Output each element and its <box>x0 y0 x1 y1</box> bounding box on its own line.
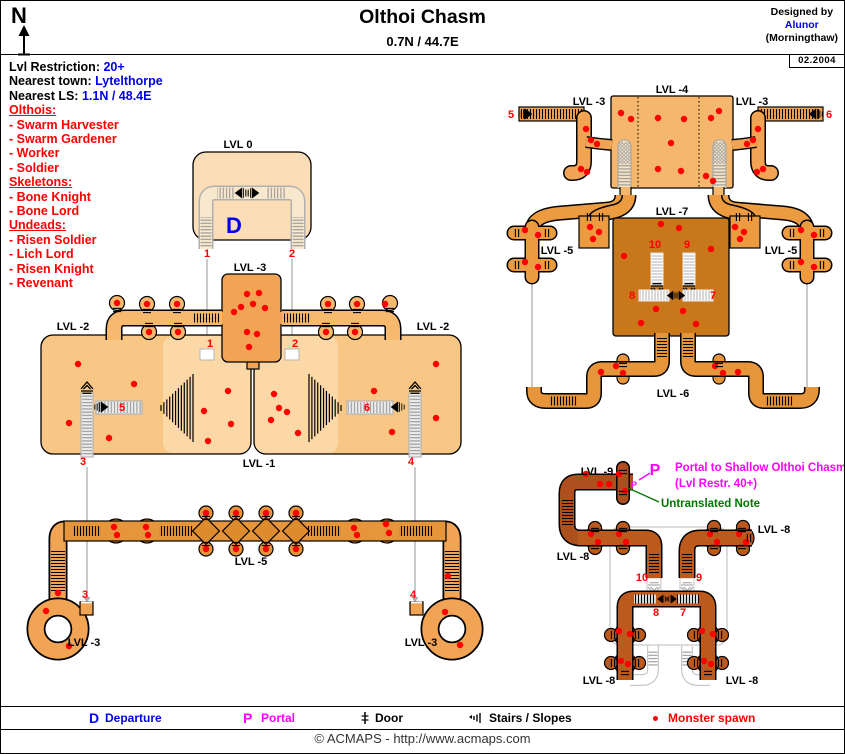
route-marker: 2 <box>292 338 298 350</box>
monster-spawn-dot <box>535 264 541 270</box>
monster-spawn-dot <box>628 116 634 122</box>
monster-spawn-dot <box>616 628 622 634</box>
page-title: Olthoi Chasm <box>1 6 844 29</box>
monster-spawn-dot <box>131 381 137 387</box>
monster-spawn-dot <box>228 421 234 427</box>
monster-spawn-dot <box>597 481 603 487</box>
level-label: LVL -3 <box>736 96 769 108</box>
monster-spawn-dot <box>744 141 750 147</box>
monster-group-title: Skeletons: <box>9 175 163 189</box>
level-label: LVL -8 <box>557 551 590 563</box>
monster-spawn-dot <box>653 306 659 312</box>
lvl5-corridor <box>36 506 474 651</box>
mid-rooms <box>41 274 461 457</box>
monster-spawn-dot <box>271 391 277 397</box>
departure-letter: D <box>226 213 242 238</box>
monster-spawn-dot <box>720 370 726 376</box>
monster-spawn-dot <box>620 370 626 376</box>
monster-spawn-dot <box>144 301 150 307</box>
route-marker: 4 <box>410 589 417 601</box>
level-label: LVL -8 <box>758 524 791 536</box>
untranslated-note: Untranslated Note <box>661 498 760 510</box>
restriction-label: Lvl Restriction: <box>9 60 100 74</box>
monster-spawn-dot <box>457 642 463 648</box>
spawn-legend-icon <box>653 716 658 721</box>
monster-spawn-dot <box>708 661 714 667</box>
monster-spawn-dot <box>743 539 749 545</box>
monster-spawn-dot <box>535 232 541 238</box>
route-marker: 1 <box>207 338 213 350</box>
monster-spawn-dot <box>522 227 528 233</box>
monster-spawn-dot <box>798 259 804 265</box>
monster-spawn-dot <box>325 301 331 307</box>
monster-spawn-dot <box>225 388 231 394</box>
monster-spawn-dot <box>578 166 584 172</box>
monster-spawn-dot <box>638 320 644 326</box>
monster-spawn-dot <box>203 546 209 552</box>
monster-spawn-dot <box>583 126 589 132</box>
route-marker: 1 <box>204 248 210 260</box>
restriction-value: 20+ <box>103 60 124 74</box>
monster-spawn-dot <box>741 229 747 235</box>
level-label: LVL -2 <box>417 321 450 333</box>
monster-spawn-dot <box>714 539 720 545</box>
monster-spawn-dot <box>701 658 707 664</box>
monster-spawn-dot <box>382 301 388 307</box>
monster-spawn-dot <box>625 661 631 667</box>
monster-spawn-dot <box>732 224 738 230</box>
route-marker: 9 <box>684 239 690 251</box>
monster-spawn-dot <box>244 329 250 335</box>
monster-spawn-dot <box>233 510 239 516</box>
monster-spawn-dot <box>658 221 664 227</box>
monster-item: - Risen Knight <box>9 262 163 276</box>
map-date: 02.2004 <box>789 55 844 68</box>
monster-spawn-dot <box>699 628 705 634</box>
monster-group-title: Olthois: <box>9 103 163 117</box>
monster-item: - Bone Lord <box>9 204 163 218</box>
monster-spawn-dot <box>284 409 290 415</box>
monster-spawn-dot <box>754 169 760 175</box>
monster-spawn-dot <box>146 329 152 335</box>
monster-spawn-dot <box>594 141 600 147</box>
monster-spawn-dot <box>55 590 61 596</box>
portal-node-letter: P <box>631 480 637 490</box>
monster-spawn-dot <box>710 178 716 184</box>
level-label: LVL -8 <box>726 675 759 687</box>
monster-spawn-dot <box>293 510 299 516</box>
monster-spawn-dot <box>676 225 682 231</box>
author-name: Alunor <box>785 19 819 31</box>
monster-spawn-dot <box>668 140 674 146</box>
monster-item: - Bone Knight <box>9 190 163 204</box>
door-legend-icon <box>359 707 371 729</box>
legend-portal-key: P <box>243 707 252 729</box>
monster-spawn-dot <box>351 525 357 531</box>
monster-spawn-dot <box>708 246 714 252</box>
copyright-footer: © ACMAPS - http://www.acmaps.com <box>1 731 844 746</box>
route-marker: 10 <box>649 239 661 251</box>
ls-label: Nearest LS: <box>9 89 78 103</box>
legend-departure-label: Departure <box>105 707 162 729</box>
monster-spawn-dot <box>262 305 268 311</box>
monster-spawn-dot <box>201 408 207 414</box>
acmaps-page: LVL 0LVL -3LVL -2LVL -2LVL -1LVL -5LVL -… <box>0 0 845 754</box>
monster-spawn-dot <box>256 290 262 296</box>
monster-spawn-dot <box>716 108 722 114</box>
town-value: Lytelthorpe <box>95 74 163 88</box>
monster-spawn-dot <box>352 329 358 335</box>
monster-spawn-dot <box>250 301 256 307</box>
monster-spawn-dot <box>703 173 709 179</box>
legend-portal-label: Portal <box>261 707 295 729</box>
monster-group-title: Undeads: <box>9 218 163 232</box>
monster-spawn-dot <box>618 658 624 664</box>
monster-spawn-dot <box>678 168 684 174</box>
monster-spawn-dot <box>203 510 209 516</box>
monster-spawn-dot <box>680 308 686 314</box>
monster-spawn-dot <box>587 224 593 230</box>
portal-pointer-line <box>639 473 650 480</box>
ls-value: 1.1N / 48.4E <box>82 89 152 103</box>
monster-spawn-dot <box>143 524 149 530</box>
monster-spawn-dot <box>710 631 716 637</box>
route-marker: 3 <box>80 456 86 468</box>
level-label: LVL -3 <box>234 262 267 274</box>
route-marker: 5 <box>119 402 125 414</box>
monster-spawn-dot <box>681 116 687 122</box>
route-marker: 3 <box>82 589 88 601</box>
level-label: LVL -5 <box>765 245 798 257</box>
monster-spawn-dot <box>295 430 301 436</box>
level-label: LVL -8 <box>583 675 616 687</box>
legend-stairs-label: Stairs / Slopes <box>489 707 572 729</box>
portal-note-line1: Portal to Shallow Olthoi Chasm <box>675 462 844 474</box>
monster-spawn-dot <box>268 417 274 423</box>
dungeon-info: Lvl Restriction: 20+ Nearest town: Lytel… <box>9 60 163 291</box>
legend-bar: D Departure P Portal Door Stairs / Slope… <box>1 706 844 730</box>
stairs-legend-icon <box>465 707 485 729</box>
monster-spawn-dot <box>584 169 590 175</box>
level-label: LVL 0 <box>224 139 253 151</box>
monster-spawn-dot <box>693 321 699 327</box>
monster-spawn-dot <box>244 291 250 297</box>
level-label: LVL -3 <box>405 637 438 649</box>
route-marker: 6 <box>826 109 832 121</box>
header-divider <box>1 54 844 55</box>
monster-spawn-dot <box>114 300 120 306</box>
monster-spawn-dot <box>445 573 451 579</box>
monster-spawn-dot <box>231 309 237 315</box>
monster-spawn-dot <box>263 510 269 516</box>
monster-spawn-dot <box>623 539 629 545</box>
level-label: LVL -9 <box>581 466 614 478</box>
level-label: LVL -5 <box>235 556 268 568</box>
monster-item: - Soldier <box>9 161 163 175</box>
monster-spawn-dot <box>114 532 120 538</box>
monster-item: - Risen Soldier <box>9 233 163 247</box>
monster-spawn-dot <box>613 363 619 369</box>
monster-spawn-dot <box>606 481 612 487</box>
monster-spawn-dot <box>323 329 329 335</box>
town-label: Nearest town: <box>9 74 92 88</box>
monster-spawn-dot <box>760 166 766 172</box>
monster-spawn-dot <box>596 229 602 235</box>
monster-spawn-dot <box>811 232 817 238</box>
legend-spawn-label: Monster spawn <box>668 707 755 729</box>
route-marker: 9 <box>696 572 702 584</box>
monster-spawn-dot <box>627 631 633 637</box>
route-marker: 7 <box>680 607 686 619</box>
monster-spawn-dot <box>442 609 448 615</box>
legend-door-label: Door <box>375 707 403 729</box>
monster-spawn-dot <box>798 227 804 233</box>
monster-spawn-dot <box>433 361 439 367</box>
monster-spawn-dot <box>750 137 756 143</box>
monster-spawn-dot <box>276 405 282 411</box>
designed-by-label: Designed by <box>771 6 833 18</box>
monster-spawn-dot <box>293 546 299 552</box>
monster-spawn-dot <box>174 301 180 307</box>
monster-spawn-dot <box>238 304 244 310</box>
monster-item: - Lich Lord <box>9 247 163 261</box>
monster-spawn-dot <box>755 126 761 132</box>
portal-note-line2: (Lvl Restr. 40+) <box>675 478 757 490</box>
monster-spawn-dot <box>522 259 528 265</box>
route-marker: 2 <box>289 248 295 260</box>
designer-credit: Designed by Alunor (Morningthaw) <box>766 6 838 45</box>
route-marker: 10 <box>636 572 648 584</box>
route-marker: 8 <box>653 607 659 619</box>
monster-spawn-dot <box>811 264 817 270</box>
route-marker: 8 <box>629 290 635 302</box>
level-label: LVL -3 <box>68 637 101 649</box>
monster-spawn-dot <box>246 344 252 350</box>
monster-spawn-dot <box>588 137 594 143</box>
monster-spawn-dot <box>354 301 360 307</box>
monster-spawn-dot <box>106 435 112 441</box>
monster-spawn-dot <box>354 532 360 538</box>
route-marker: 7 <box>710 290 716 302</box>
monster-spawn-dot <box>205 438 211 444</box>
monster-item: - Worker <box>9 146 163 160</box>
monster-spawn-dot <box>655 115 661 121</box>
route-marker: 4 <box>408 456 415 468</box>
monster-spawn-dot <box>386 530 392 536</box>
monster-spawn-dot <box>43 608 49 614</box>
level-label: LVL -4 <box>656 84 689 96</box>
route-marker: 5 <box>508 109 514 121</box>
monster-spawn-dot <box>111 524 117 530</box>
monster-spawn-dot <box>735 369 741 375</box>
route-marker: 6 <box>364 402 370 414</box>
monster-spawn-dot <box>254 331 260 337</box>
monster-spawn-dot <box>233 546 239 552</box>
monster-spawn-dot <box>595 539 601 545</box>
level-label: LVL -1 <box>243 458 276 470</box>
level-label: LVL -2 <box>57 321 90 333</box>
level-label: LVL -6 <box>657 388 690 400</box>
level-label: LVL -3 <box>573 96 606 108</box>
monster-spawn-dot <box>598 369 604 375</box>
lvl0-room <box>193 152 311 249</box>
portal-letter: P <box>650 462 661 479</box>
level-label: LVL -5 <box>541 245 574 257</box>
monster-spawn-dot <box>621 253 627 259</box>
monster-spawn-dot <box>145 532 151 538</box>
monster-item: - Revenant <box>9 276 163 290</box>
monster-spawn-dot <box>66 420 72 426</box>
monster-spawn-dot <box>618 110 624 116</box>
monster-spawn-dot <box>737 236 743 242</box>
server-name: (Morningthaw) <box>766 32 838 44</box>
monster-spawn-dot <box>175 329 181 335</box>
note-pointer-line <box>628 488 659 502</box>
monster-spawn-dot <box>371 388 377 394</box>
monster-item: - Swarm Harvester <box>9 118 163 132</box>
monster-spawn-dot <box>383 521 389 527</box>
level-label: LVL -7 <box>656 206 689 218</box>
monster-spawn-dot <box>708 115 714 121</box>
monster-spawn-dot <box>590 236 596 242</box>
legend-departure-key: D <box>89 707 99 729</box>
monster-spawn-dot <box>433 415 439 421</box>
monster-spawn-dot <box>389 429 395 435</box>
monster-item: - Swarm Gardener <box>9 132 163 146</box>
monster-spawn-dot <box>655 166 661 172</box>
monster-spawn-dot <box>75 361 81 367</box>
map-coordinates: 0.7N / 44.7E <box>1 34 844 49</box>
monster-spawn-dot <box>263 546 269 552</box>
